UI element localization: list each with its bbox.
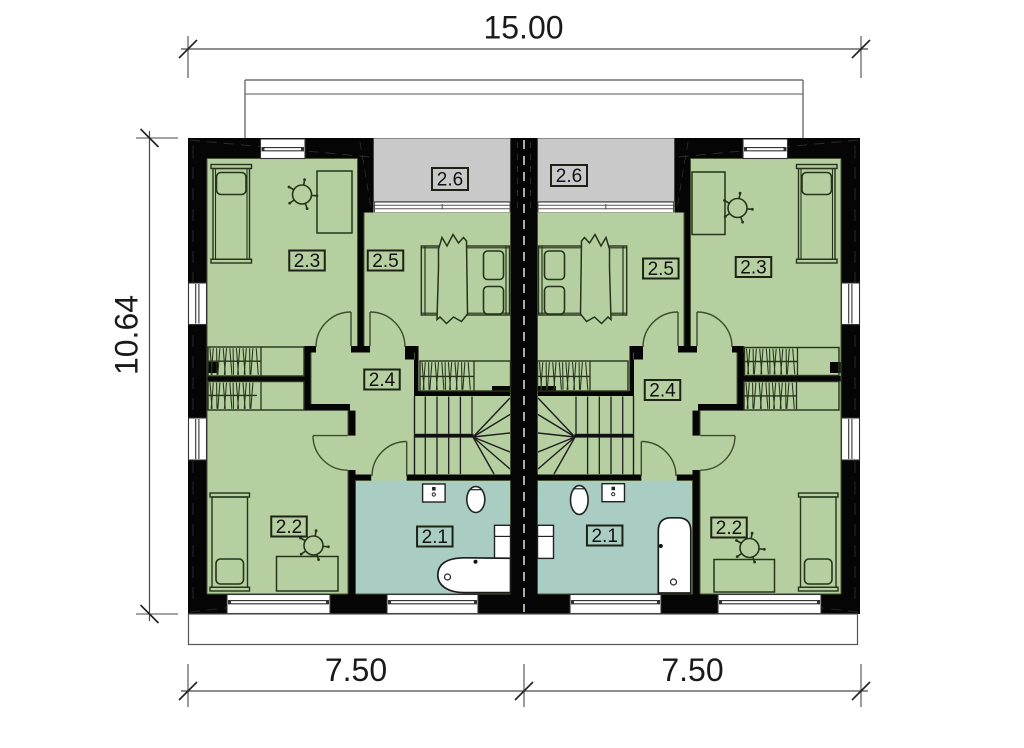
svg-text:2.1: 2.1	[422, 527, 448, 548]
svg-text:2.2: 2.2	[276, 517, 302, 538]
svg-text:15.00: 15.00	[483, 10, 563, 46]
svg-text:7.50: 7.50	[325, 652, 387, 688]
svg-text:2.1: 2.1	[591, 526, 617, 547]
svg-text:7.50: 7.50	[661, 652, 723, 688]
svg-text:2.3: 2.3	[740, 258, 766, 279]
svg-text:2.5: 2.5	[372, 251, 398, 272]
svg-text:2.3: 2.3	[294, 251, 320, 272]
svg-text:2.4: 2.4	[369, 370, 396, 391]
svg-text:2.4: 2.4	[649, 381, 676, 402]
svg-text:2.6: 2.6	[556, 166, 582, 187]
svg-text:2.5: 2.5	[648, 259, 674, 280]
svg-text:10.64: 10.64	[109, 295, 145, 375]
svg-text:2.6: 2.6	[437, 170, 463, 191]
svg-text:2.2: 2.2	[716, 518, 742, 539]
